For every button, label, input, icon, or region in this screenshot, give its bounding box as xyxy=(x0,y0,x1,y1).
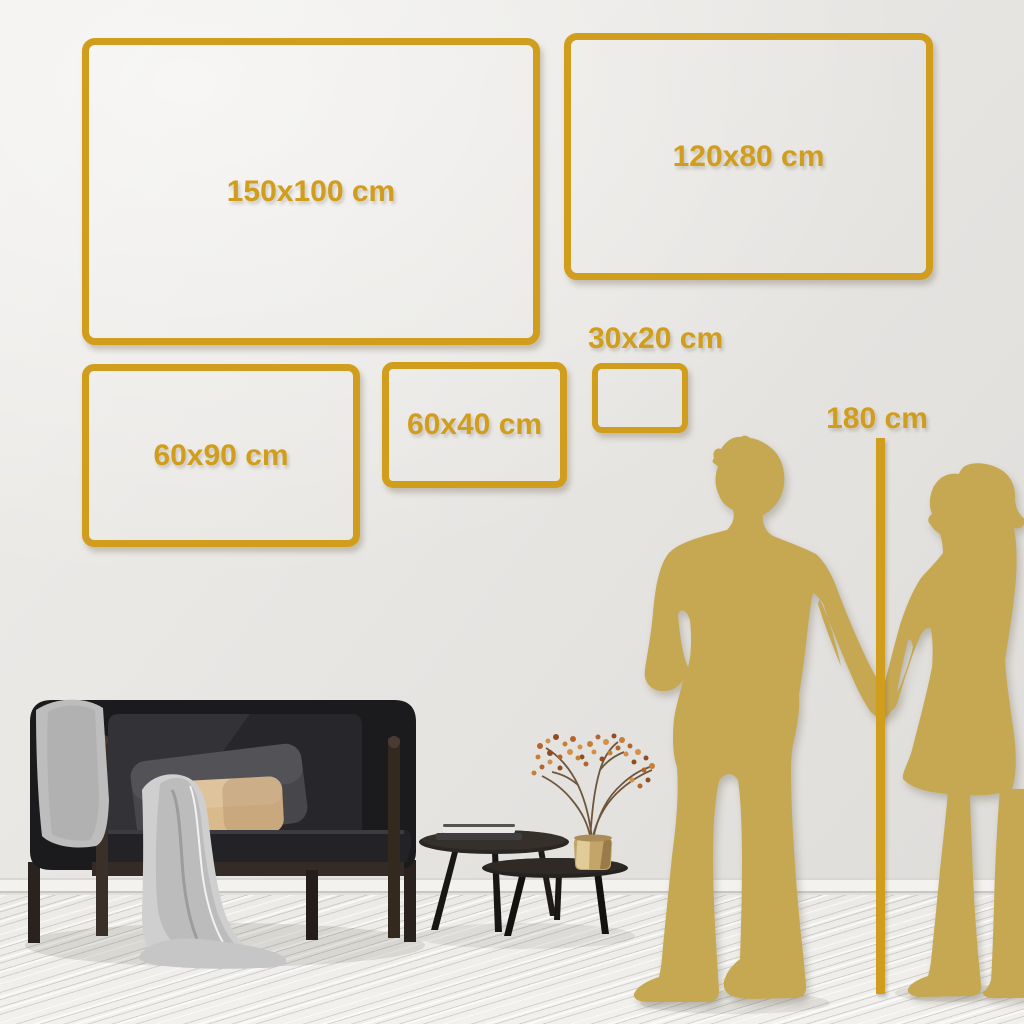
size-frame-120x80: 120x80 cm xyxy=(564,33,933,280)
man-silhouette xyxy=(634,436,892,1002)
size-frame-60x90: 60x90 cm xyxy=(82,364,360,547)
woman-silhouette xyxy=(880,463,1024,998)
brass-vase xyxy=(574,835,612,871)
sofa xyxy=(28,700,416,969)
size-frame-label-150x100: 150x100 cm xyxy=(227,175,396,209)
size-frame-label-120x80: 120x80 cm xyxy=(673,140,825,174)
size-frame-label-60x90: 60x90 cm xyxy=(153,439,288,473)
books xyxy=(436,824,522,840)
coffee-table-large xyxy=(419,824,569,932)
size-frame-60x40: 60x40 cm xyxy=(382,362,567,488)
size-frame-150x100: 150x100 cm xyxy=(82,38,540,345)
height-reference-label: 180 cm xyxy=(826,402,928,436)
height-reference-line xyxy=(876,438,885,994)
size-frame-label-60x40: 60x40 cm xyxy=(407,408,542,442)
size-frame-30x20 xyxy=(592,363,688,433)
size-frame-label-30x20: 30x20 cm xyxy=(588,322,723,356)
size-guide-scene: 150x100 cm 120x80 cm 30x20 cm 60x40 cm 6… xyxy=(0,0,1024,1024)
